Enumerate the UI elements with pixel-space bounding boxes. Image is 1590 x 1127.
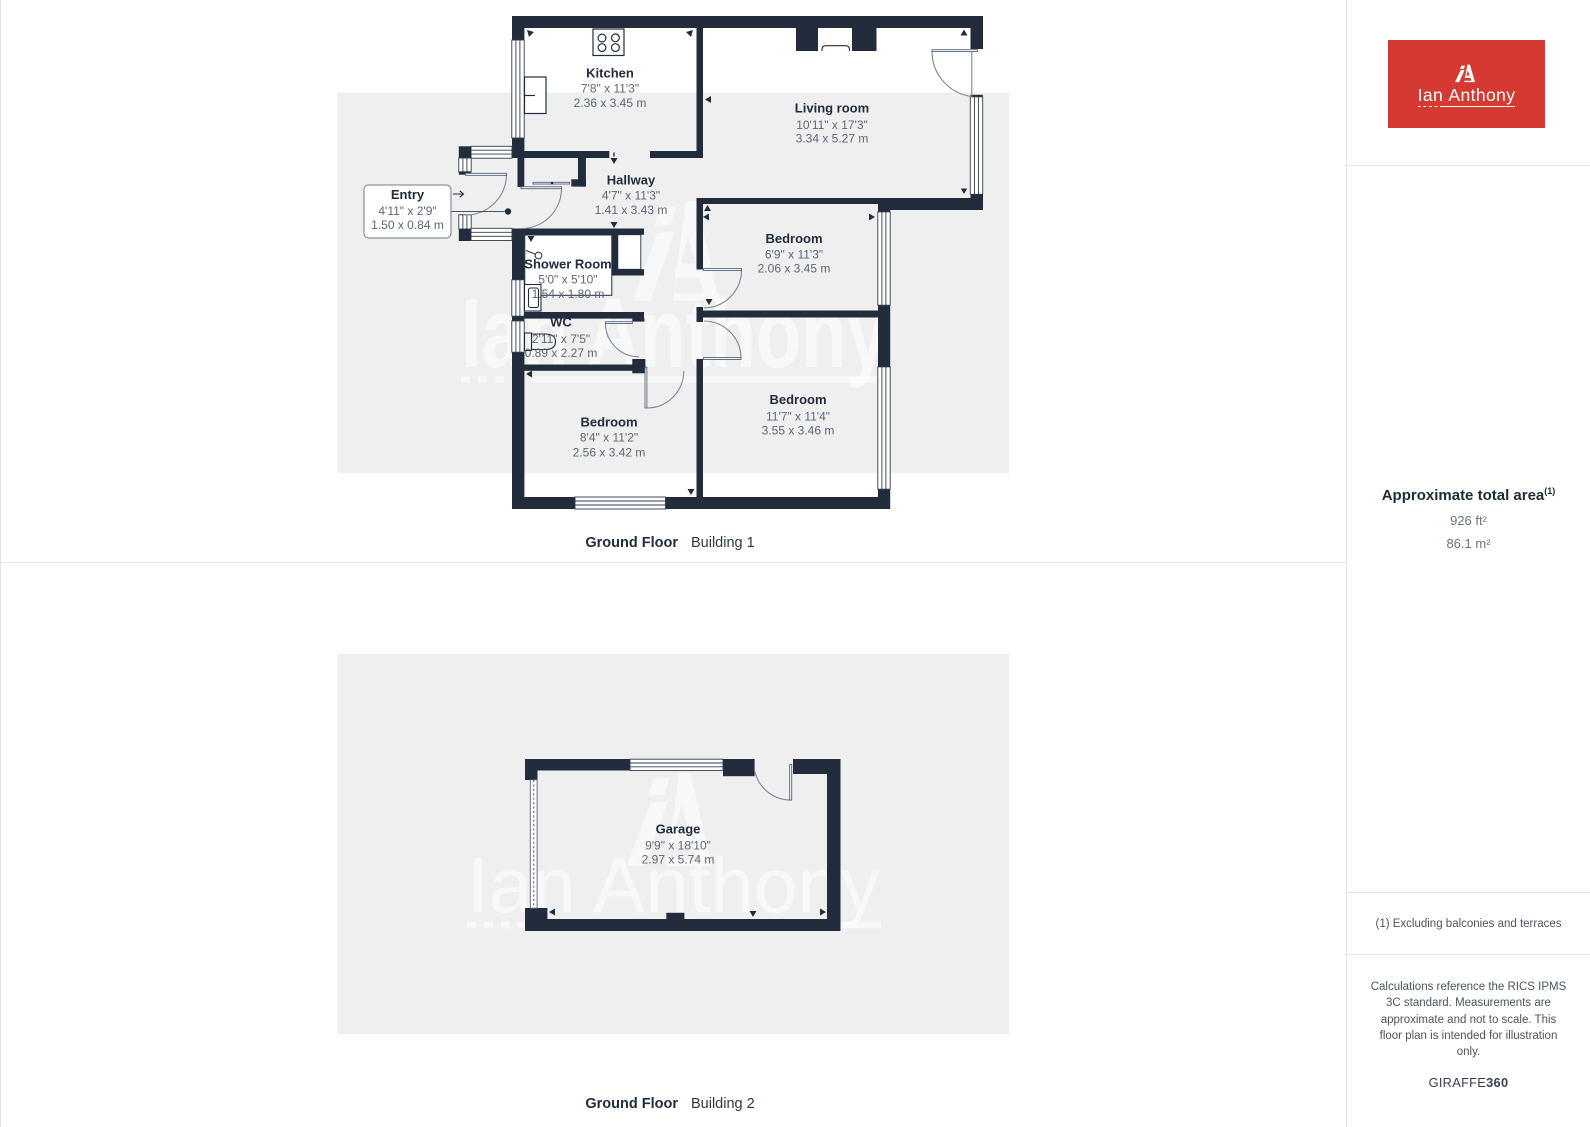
svg-text:Garage: Garage — [656, 822, 701, 837]
svg-text:Ground Floor: Ground Floor — [585, 1096, 678, 1112]
svg-text:10'11" x 17'3": 10'11" x 17'3" — [796, 118, 868, 132]
svg-text:Bedroom: Bedroom — [769, 392, 826, 407]
svg-text:11'7" x 11'4": 11'7" x 11'4" — [766, 410, 830, 424]
svg-text:0.89 x 2.27 m: 0.89 x 2.27 m — [525, 346, 598, 360]
svg-text:Ground Floor: Ground Floor — [585, 535, 678, 551]
svg-text:3.34 x 5.27 m: 3.34 x 5.27 m — [796, 132, 869, 146]
svg-text:4'7" x 11'3": 4'7" x 11'3" — [602, 189, 660, 203]
svg-text:7'8" x 11'3": 7'8" x 11'3" — [581, 82, 639, 96]
svg-text:2.56 x 3.42 m: 2.56 x 3.42 m — [573, 446, 646, 460]
svg-text:Building 1: Building 1 — [691, 535, 755, 551]
svg-text:9'9" x 18'10": 9'9" x 18'10" — [645, 839, 711, 853]
svg-text:Kitchen: Kitchen — [586, 66, 634, 81]
svg-text:Bedroom: Bedroom — [580, 415, 637, 430]
svg-text:Entry: Entry — [391, 187, 425, 202]
svg-text:2'11" x 7'5": 2'11" x 7'5" — [532, 332, 590, 346]
svg-text:Shower Room: Shower Room — [524, 257, 611, 272]
svg-text:Living room: Living room — [795, 101, 869, 116]
svg-text:1.54 x 1.80 m: 1.54 x 1.80 m — [532, 287, 605, 301]
svg-text:2.06 x 3.45 m: 2.06 x 3.45 m — [758, 262, 831, 276]
svg-text:5'0" x 5'10": 5'0" x 5'10" — [538, 273, 597, 287]
svg-text:6'9" x 11'3": 6'9" x 11'3" — [765, 248, 823, 262]
svg-text:Building 2: Building 2 — [691, 1096, 755, 1112]
svg-text:3.55 x 3.46 m: 3.55 x 3.46 m — [762, 424, 835, 438]
svg-text:2.97 x 5.74 m: 2.97 x 5.74 m — [642, 853, 715, 867]
svg-text:8'4" x 11'2": 8'4" x 11'2" — [580, 431, 638, 445]
svg-text:Hallway: Hallway — [607, 173, 656, 188]
svg-text:1.50 x 0.84 m: 1.50 x 0.84 m — [371, 218, 444, 232]
svg-text:1.41 x 3.43 m: 1.41 x 3.43 m — [595, 203, 668, 217]
svg-text:2.36 x 3.45 m: 2.36 x 3.45 m — [574, 96, 647, 110]
svg-text:Bedroom: Bedroom — [765, 231, 822, 246]
svg-text:WC: WC — [550, 315, 572, 330]
svg-text:4'11" x 2'9": 4'11" x 2'9" — [378, 204, 436, 218]
